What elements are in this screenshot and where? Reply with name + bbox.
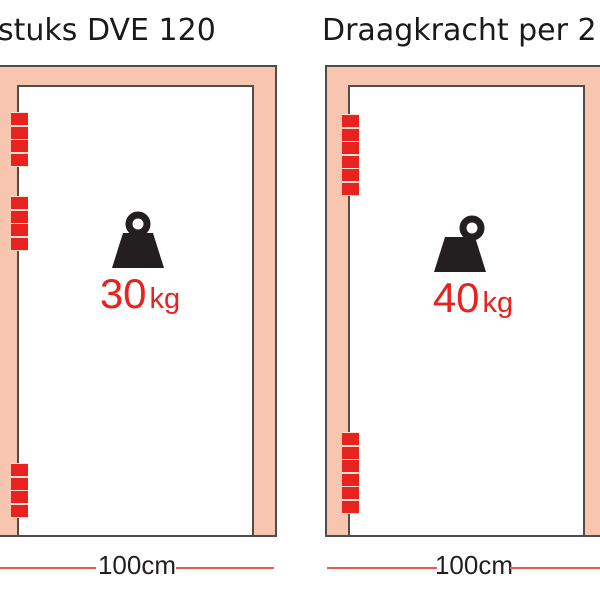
hinge-segment: [11, 140, 28, 152]
dimension-line-right-b: [510, 567, 600, 569]
dimension-label-right: 100cm: [414, 551, 534, 580]
hinge-segment: [11, 464, 28, 476]
hinge-left-middle: [11, 196, 28, 251]
hinge-segment: [11, 197, 28, 209]
hinge-right-bottom: [342, 432, 359, 514]
weight-unit-right: kg: [483, 289, 514, 318]
hinge-segment: [11, 224, 28, 236]
hinge-segment: [11, 478, 28, 490]
hinge-segment: [342, 447, 359, 459]
weight-label-right: 40 kg: [408, 277, 538, 319]
weight-unit-left: kg: [150, 285, 181, 314]
hinge-segment: [11, 491, 28, 503]
hinge-segment: [342, 433, 359, 445]
dimension-label-left: 100cm: [77, 551, 197, 580]
hinge-left-top: [11, 112, 28, 167]
panel-title-right: Draagkracht per 2: [322, 13, 597, 49]
hinge-segment: [11, 127, 28, 139]
hinge-segment: [342, 501, 359, 513]
hinge-segment: [342, 487, 359, 499]
hinge-left-bottom: [11, 463, 28, 518]
hinge-segment: [11, 238, 28, 250]
dimension-line-left-b: [176, 567, 274, 569]
hinge-segment: [11, 211, 28, 223]
weight-icon: [108, 211, 168, 269]
hinge-segment: [342, 474, 359, 486]
hinge-segment: [11, 505, 28, 517]
hinge-segment: [11, 154, 28, 166]
hinge-segment: [342, 142, 359, 154]
weight-icon: [430, 215, 490, 273]
hinge-segment: [342, 115, 359, 127]
hinge-segment: [342, 183, 359, 195]
panel-title-left: stuks DVE 120: [0, 13, 216, 49]
hinge-segment: [342, 129, 359, 141]
diagram-canvas: stuks DVE 120 30 kg 100cm Draagkracht pe…: [0, 0, 600, 600]
hinge-segment: [11, 113, 28, 125]
weight-label-left: 30 kg: [75, 273, 205, 315]
weight-value-left: 30: [100, 273, 147, 315]
weight-value-right: 40: [433, 277, 480, 319]
hinge-segment: [342, 169, 359, 181]
hinge-segment: [342, 156, 359, 168]
hinge-right-top: [342, 114, 359, 196]
hinge-segment: [342, 460, 359, 472]
